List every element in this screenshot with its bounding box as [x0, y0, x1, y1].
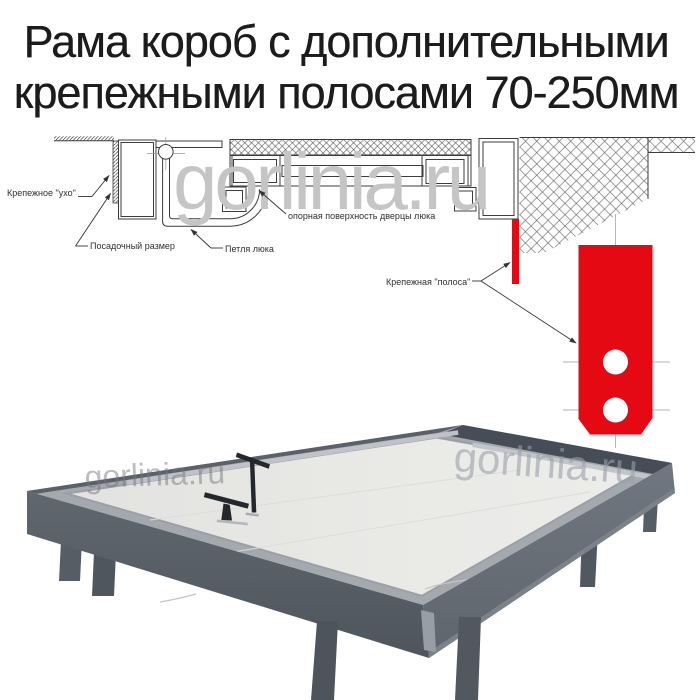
svg-text:опорная поверхность дверцы люк: опорная поверхность дверцы люка [288, 211, 435, 221]
svg-text:gorlinia.ru: gorlinia.ru [84, 454, 226, 495]
svg-text:Петля люка: Петля люка [225, 244, 274, 254]
svg-text:Крепежное "ухо": Крепежное "ухо" [7, 188, 76, 198]
svg-text:Посадочный размер: Посадочный размер [90, 241, 175, 251]
svg-text:Крепежная "полоса": Крепежная "полоса" [386, 277, 470, 287]
